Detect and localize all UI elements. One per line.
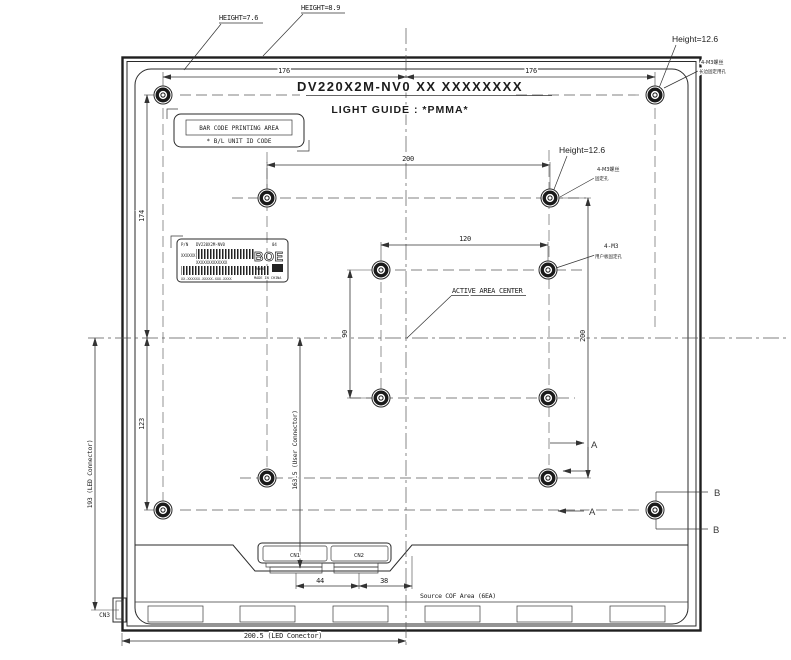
sticker-serial: XX-XXXXXX-XXXXX-XXX-XXXX: [181, 277, 232, 281]
section-a-top-label: A: [591, 440, 598, 451]
corner-hole-note-2: 长边固定用孔: [699, 68, 726, 75]
screw-hole: [539, 469, 557, 487]
cn2-label: CN2: [354, 553, 364, 559]
screw-hole: [372, 261, 390, 279]
dim-200-5-led-connector: 200.5 (LED Conector): [244, 632, 322, 640]
dim-38: 38: [380, 577, 388, 585]
section-b-top-label: B: [714, 488, 720, 499]
barcode-area-line2: * B/L UNIT ID CODE: [206, 138, 271, 145]
dim-120: 120: [459, 235, 471, 243]
screw-hole: [154, 86, 172, 104]
screw-hole: [539, 261, 557, 279]
screw-hole: [258, 189, 276, 207]
boe-logo: BOE: [254, 249, 284, 264]
section-b-bottom-label: B: [713, 525, 719, 536]
cn2-pins: [334, 563, 378, 567]
dimension-lines: [91, 72, 655, 646]
mid-hole-note-1: 4-M3螺丝: [597, 166, 619, 173]
dim-174: 174: [138, 210, 146, 222]
source-cof-strip: [135, 602, 688, 622]
cof-pad: [425, 606, 480, 622]
height-callout-mid: Height=12.6: [559, 145, 605, 155]
height-callout-corner: Height=12.6: [672, 34, 718, 44]
connector-recess: [135, 543, 688, 573]
section-a-bottom-label: A: [589, 507, 596, 518]
dim-90: 90: [341, 330, 349, 338]
sticker-part-number: DV220X2M-NV0: [196, 242, 225, 247]
dim-176-right: 176: [525, 67, 537, 75]
screw-hole: [646, 501, 664, 519]
source-cof-label: Source COF Area (6EA): [420, 592, 496, 600]
cn1-tongue: [270, 567, 322, 573]
user-hole-note-1: 4-M3: [604, 243, 619, 250]
dim-200-h: 200: [402, 155, 414, 163]
dim-176-left: 176: [278, 67, 290, 75]
barcode-area-line1: BAR CODE PRINTING AREA: [199, 125, 279, 132]
sticker-pn-label: P/N: [181, 242, 189, 247]
drawing-page: DV220X2M-NV0 XX XXXXXXXX LIGHT GUIDE : *…: [0, 0, 791, 660]
height-callout-left: HEIGHT=7.6: [219, 14, 258, 22]
corner-hole-note-1: 4-M3螺丝: [701, 59, 723, 66]
sticker-mid-code: XXXXXXXXXXXXX: [196, 260, 228, 265]
engineering-drawing-canvas: DV220X2M-NV0 XX XXXXXXXX LIGHT GUIDE : *…: [0, 0, 791, 660]
sticker-cert: RoHS: [256, 267, 264, 271]
sticker-made-in: MADE IN CHINA: [254, 276, 282, 280]
cn1-label: CN1: [290, 553, 300, 559]
section-marks: [550, 443, 708, 529]
screw-hole: [646, 86, 664, 104]
centerlines: [88, 28, 789, 649]
dim-163-5-user-connector: 163.5 (User Connector): [291, 410, 299, 490]
dim-123: 123: [138, 418, 146, 430]
material-line: LIGHT GUIDE : *PMMA*: [331, 104, 468, 116]
active-area-center-label: ACTIVE AREA CENTER: [452, 287, 524, 295]
screw-hole: [541, 189, 559, 207]
cof-pad: [240, 606, 295, 622]
cn3-label: CN3: [99, 612, 110, 619]
dim-193-led-connector: 193 (LED Connector): [86, 440, 94, 509]
barcode-1: [196, 249, 254, 259]
mid-hole-note-2: 固定孔: [595, 175, 609, 182]
cof-pad: [610, 606, 665, 622]
sticker-left-code: XXXXXX: [181, 253, 196, 258]
part-number-title: DV220X2M-NV0 XX XXXXXXXX: [297, 79, 523, 94]
cof-pad: [517, 606, 572, 622]
user-hole-note-2: 用户板固定孔: [595, 253, 622, 260]
cof-pad: [148, 606, 203, 622]
sticker-rev: 04: [272, 242, 277, 247]
screw-hole: [539, 389, 557, 407]
cn2-tongue: [334, 567, 378, 573]
cn1-pins: [266, 563, 322, 567]
dim-44: 44: [316, 577, 324, 585]
cert-logo: [272, 264, 283, 272]
dim-200-v: 200: [579, 330, 587, 342]
screw-hole: [372, 389, 390, 407]
cof-pad: [333, 606, 388, 622]
screw-hole: [258, 469, 276, 487]
height-callout-top: HEIGHT=8.9: [301, 4, 340, 12]
screw-hole: [154, 501, 172, 519]
